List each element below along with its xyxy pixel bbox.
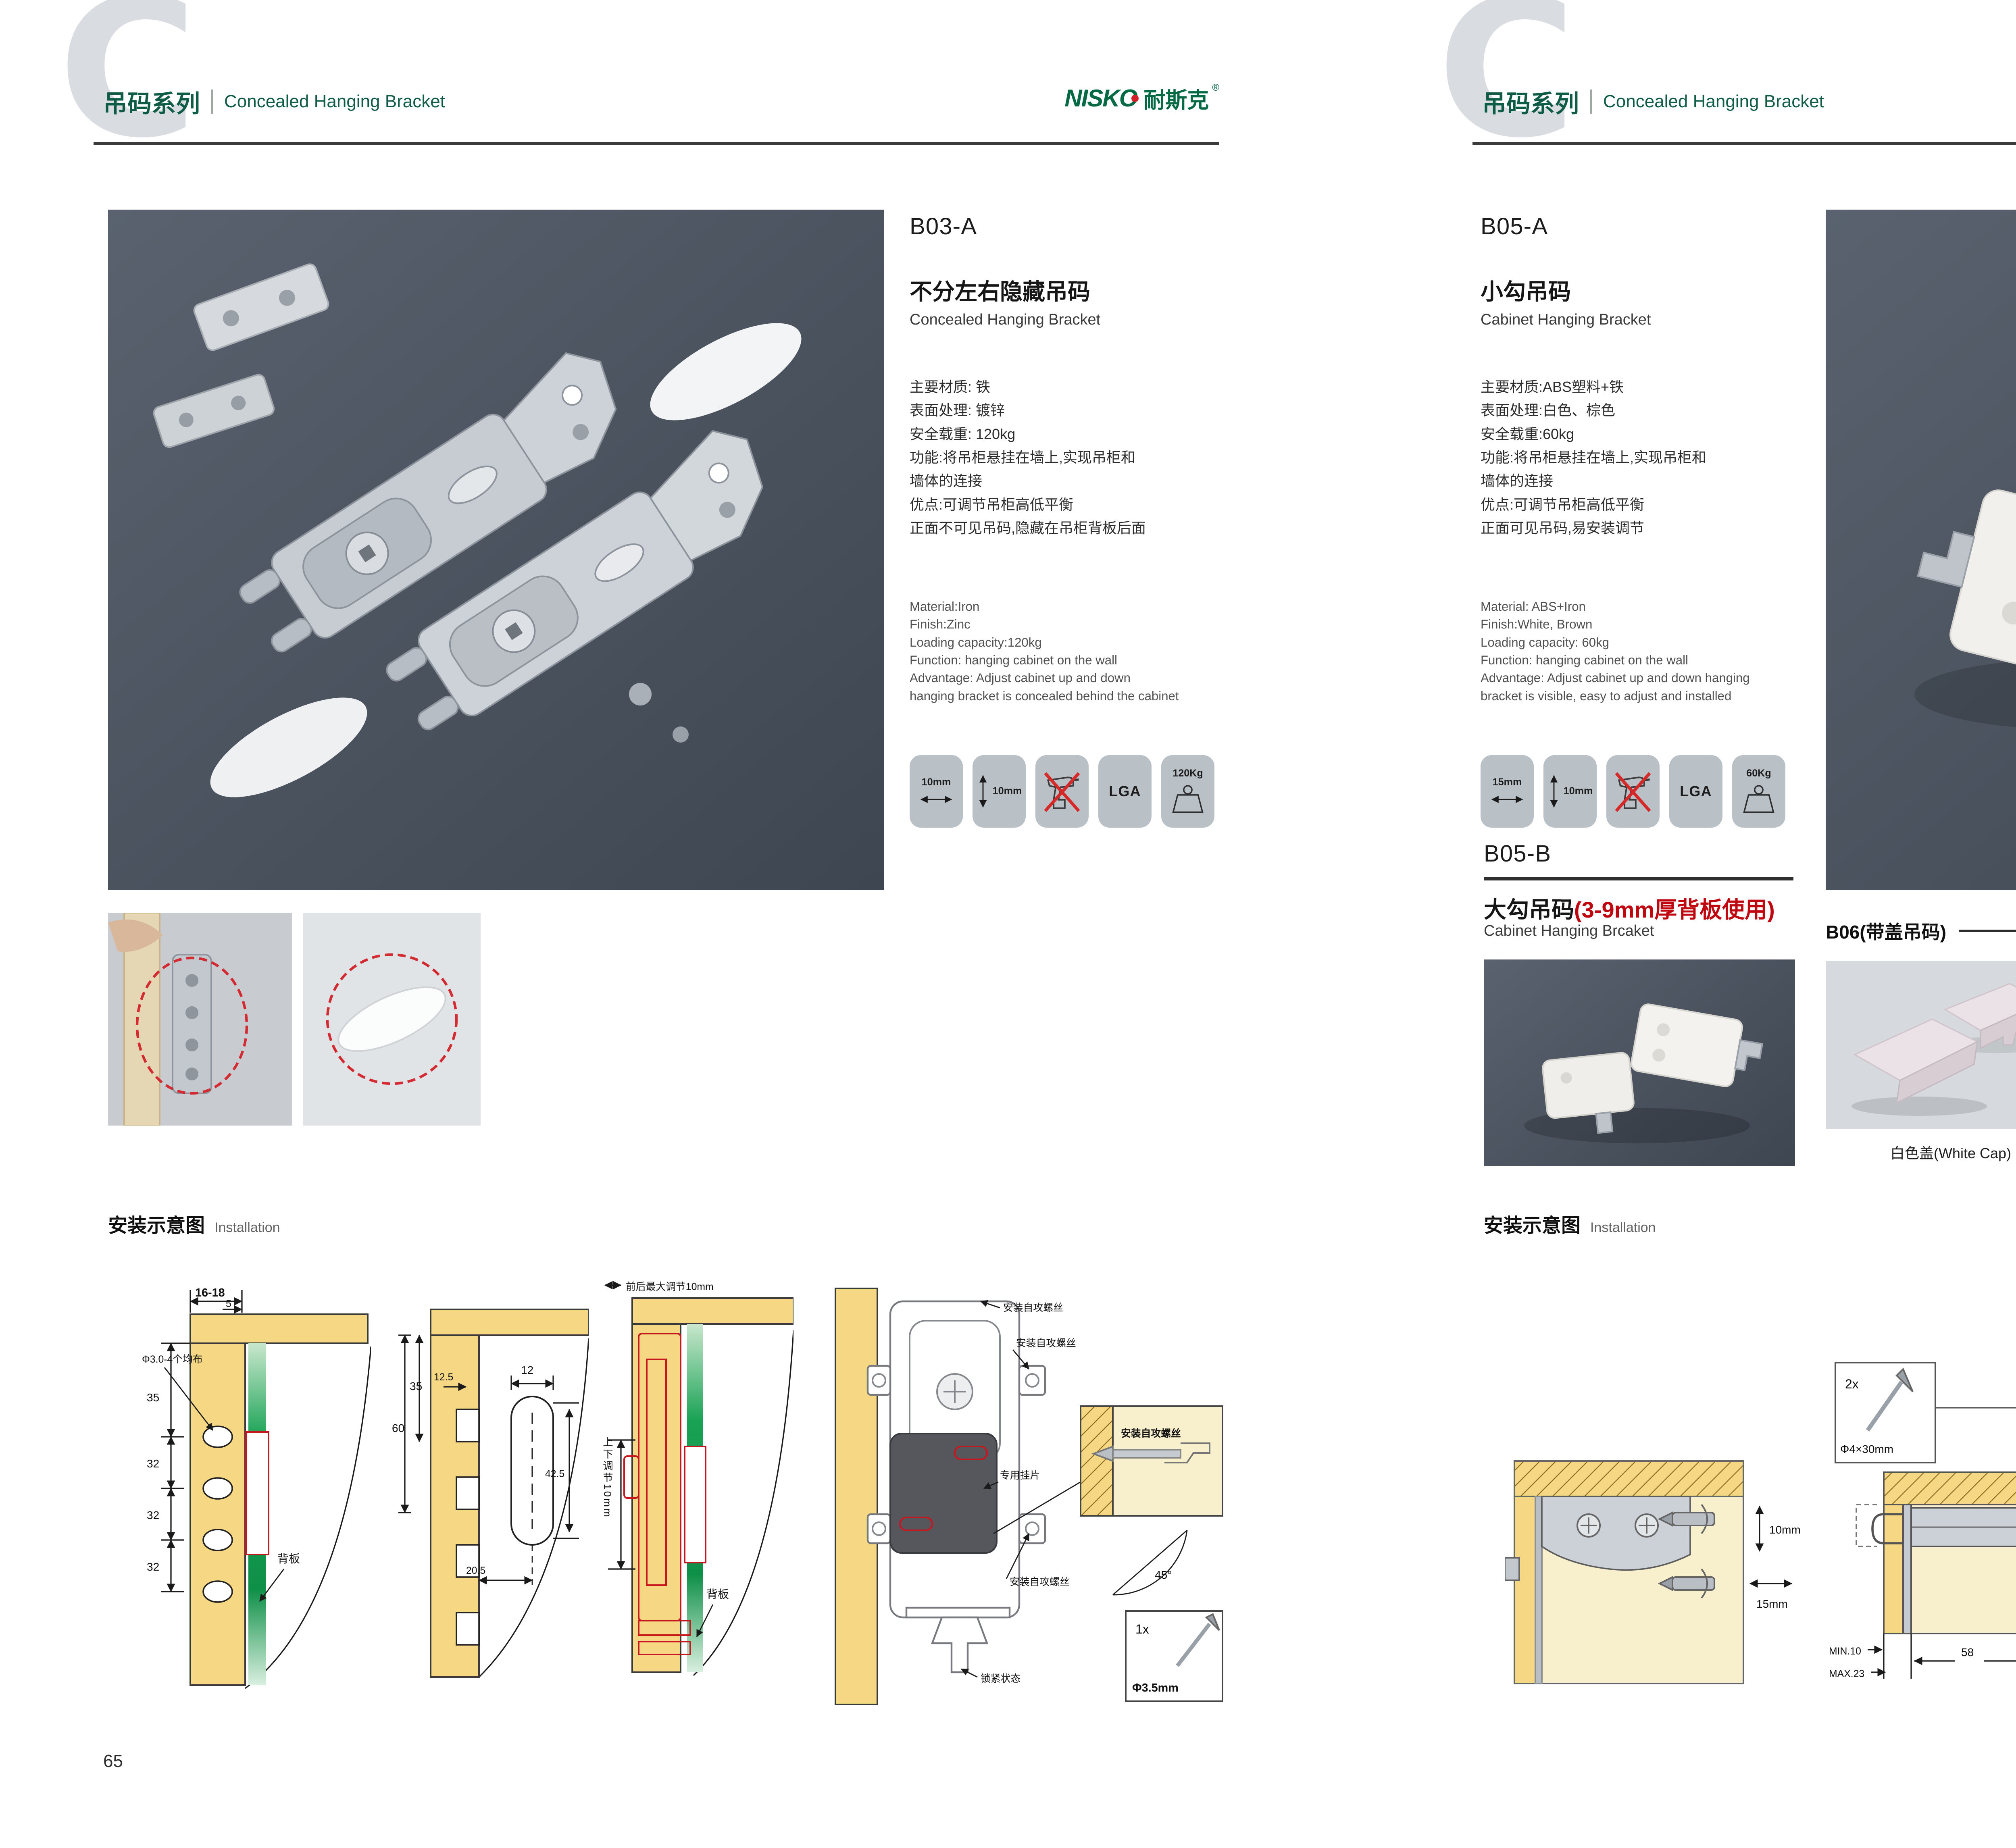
b06-section-header: B06(带盖吊码) — [1826, 918, 2016, 944]
dim-label: 58 — [1961, 1646, 1974, 1659]
product-name-cn: 大勾吊码(3-9mm厚背板使用) — [1484, 892, 1775, 924]
spec-line: 安全载重: 120kg — [910, 422, 1226, 446]
spec-line: 正面不可见吊码,隐藏在吊柜背板后面 — [910, 516, 1226, 540]
installation-title-en: Installation — [1590, 1220, 1656, 1236]
dim-label: MIN.10 — [1829, 1646, 1861, 1657]
no-drill-icon — [1612, 767, 1654, 816]
b06-title: B06(带盖吊码) — [1826, 918, 1946, 944]
product-name-cn: 不分左右隐藏吊码 — [910, 274, 1226, 306]
installation-title-right: 安装示意图 Installation — [1484, 1209, 1656, 1238]
arrow-horizontal-icon — [915, 793, 957, 806]
brand-logo-text: NISKO — [1064, 84, 1140, 112]
b05a-specs-en: Material: ABS+Iron Finish:White, Brown L… — [1481, 598, 1800, 705]
installation-title-cn: 安装示意图 — [108, 1209, 205, 1238]
header-rule-left — [94, 142, 1219, 145]
page-number-left: 65 — [103, 1751, 123, 1771]
spec-line: 正面可见吊码,易安装调节 — [1481, 516, 1800, 540]
spec-line: Finish:White, Brown — [1481, 616, 1800, 633]
spec-line: Loading capacity: 60kg — [1481, 634, 1800, 651]
dim-label: 5 — [226, 1299, 231, 1309]
badge-label: LGA — [1680, 783, 1712, 800]
arrow-vertical-icon — [977, 769, 989, 814]
badge-load-capacity: 120Kg — [1161, 755, 1214, 828]
weight-icon — [1168, 784, 1207, 815]
b05a-specs-cn: 主要材质:ABS塑料+铁 表面处理:白色、棕色 安全载重:60kg 功能:将吊柜… — [1481, 375, 1800, 540]
spec-line: hanging bracket is concealed behind the … — [910, 687, 1226, 705]
product-code: B05-B — [1484, 840, 1551, 867]
spec-line: Material:Iron — [910, 598, 1226, 616]
dim-label: 12 — [521, 1364, 533, 1376]
b03a-thumbnail-illustration — [108, 913, 292, 1126]
dim-label: MAX.23 — [1829, 1669, 1864, 1679]
badge-label: 10mm — [993, 785, 1022, 797]
diagram-b03a-adjust-drawing: 前后最大调节10mm 背板 — [600, 1276, 793, 1701]
spec-line: Finish:Zinc — [910, 616, 1226, 633]
diagram-b03a-slot: 60 35 12.5 12 42.5 20.5 — [392, 1287, 589, 1693]
product-name-en: Cabinet Hanging Bracket — [1481, 311, 1800, 329]
header-rule-right — [1472, 142, 2016, 145]
b03a-cover-illustration — [303, 913, 481, 1126]
spec-line: 功能:将吊柜悬挂在墙上,实现吊柜和 — [1481, 446, 1800, 469]
screw-size: Φ3.5mm — [1132, 1682, 1179, 1694]
b03a-info-column: B03-A 不分左右隐藏吊码 Concealed Hanging Bracket… — [910, 213, 1226, 828]
plate-note: 专用挂片 — [1000, 1470, 1040, 1481]
spec-line: Function: hanging cabinet on the wall — [910, 651, 1226, 669]
spec-line: 主要材质: 铁 — [910, 375, 1226, 399]
product-name-en: Concealed Hanging Bracket — [910, 311, 1226, 329]
dim-label: 16-18 — [195, 1286, 225, 1299]
b05a-product-photo — [1826, 210, 2016, 890]
front-back-adjust-label: 前后最大调节10mm — [626, 1281, 714, 1292]
screw-note: 安装自攻螺丝 — [1016, 1338, 1076, 1349]
spec-line: Advantage: Adjust cabinet up and down ha… — [1481, 669, 1800, 687]
badge-load-capacity: 60Kg — [1732, 755, 1785, 828]
b05b-name-note: (3-9mm厚背板使用) — [1574, 897, 1775, 922]
b05a-info-column: B05-A 小勾吊码 Cabinet Hanging Bracket 主要材质:… — [1481, 213, 1800, 828]
diagram-b05-mounting: 2x Φ4×30mm 18 MIN.10 MAX.23 58 — [1829, 1359, 2016, 1690]
no-drill-icon — [1041, 767, 1083, 816]
product-code: B03-A — [910, 213, 1226, 240]
weight-icon — [1739, 784, 1778, 815]
vertical-adjust-label: 上下调节10mm — [600, 1437, 614, 1519]
screw-note: 安装自攻螺丝 — [1003, 1302, 1063, 1313]
badge-height-adjust: 10mm — [1543, 755, 1597, 828]
badge-label: 120Kg — [1173, 768, 1203, 779]
dim-label: 35 — [147, 1391, 159, 1404]
dim-label: 35 — [410, 1380, 422, 1392]
spec-line: Loading capacity:120kg — [910, 634, 1226, 651]
b03a-specs-cn: 主要材质: 铁 表面处理: 镀锌 安全载重: 120kg 功能:将吊柜悬挂在墙上… — [910, 375, 1226, 540]
screw-size: Φ4×30mm — [1840, 1443, 1893, 1455]
header-divider — [211, 89, 213, 114]
badge-label: 10mm — [922, 776, 951, 788]
series-title-cn: 吊码系列 — [1482, 84, 1579, 119]
badge-height-adjust: 10mm — [973, 755, 1026, 828]
b03a-cover-thumbnail — [303, 913, 481, 1126]
badge-no-drill — [1606, 755, 1660, 828]
badge-lga: LGA — [1098, 755, 1152, 828]
arrow-vertical-icon — [1547, 769, 1560, 814]
series-title-en: Concealed Hanging Bracket — [1603, 92, 1824, 112]
badge-label: 15mm — [1493, 776, 1522, 788]
right-page-header: 吊码系列 Concealed Hanging Bracket — [1482, 84, 1824, 119]
spec-line: 主要材质:ABS塑料+铁 — [1481, 375, 1800, 399]
screw-qty: 1x — [1135, 1622, 1149, 1636]
dim-label: 10mm — [1769, 1523, 1801, 1536]
product-code: B05-A — [1481, 213, 1800, 240]
b03a-product-illustration — [108, 210, 884, 890]
detail-screw-note: 安装自攻螺丝 — [1121, 1428, 1181, 1439]
back-panel-label: 背板 — [706, 1588, 729, 1600]
diagram-b05-section: 10mm 15mm — [1505, 1416, 1814, 1693]
series-title-en: Concealed Hanging Bracket — [224, 92, 445, 112]
spec-line: 墙体的连接 — [910, 469, 1226, 493]
spec-line: Advantage: Adjust cabinet up and down — [910, 669, 1226, 687]
b06-white-cap-photo — [1826, 961, 2016, 1129]
arrow-horizontal-icon — [1486, 793, 1528, 806]
badge-depth-adjust: 10mm — [910, 755, 963, 828]
b05b-product-photo — [1484, 959, 1795, 1166]
watermark-letter-left: C — [58, 0, 198, 164]
spec-line: Function: hanging cabinet on the wall — [1481, 651, 1800, 669]
b06-rule — [1959, 930, 2016, 932]
dim-label: 20.5 — [466, 1565, 485, 1576]
dim-label: 32 — [147, 1509, 159, 1521]
spec-line: 墙体的连接 — [1481, 469, 1800, 493]
brand-logo-cn: 耐斯克 — [1143, 82, 1209, 114]
dim-label: 12.5 — [434, 1372, 453, 1383]
b05b-name: 大勾吊码 — [1484, 897, 1574, 922]
dim-label: 32 — [147, 1561, 159, 1573]
spec-line: 优点:可调节吊柜高低平衡 — [1481, 493, 1800, 516]
b05b-product-illustration — [1484, 959, 1795, 1166]
registered-mark-icon: ® — [1212, 82, 1219, 94]
diagram-b03a-drilling: 16-18 5 35 32 32 32 Φ3.0-4个均布 背板 — [142, 1282, 371, 1704]
spec-line: 表面处理:白色、棕色 — [1481, 399, 1800, 422]
brand-logo-left: NISKO 耐斯克 ® — [1026, 82, 1219, 114]
spec-line: 功能:将吊柜悬挂在墙上,实现吊柜和 — [910, 446, 1226, 469]
screw-qty: 2x — [1845, 1377, 1859, 1391]
badge-label: LGA — [1109, 783, 1141, 800]
diagram-b03a-adjust: 上下调节10mm 前后最大调节10mm 背板 — [600, 1276, 793, 1701]
b03a-product-photo — [108, 210, 884, 890]
installation-title-left: 安装示意图 Installation — [108, 1209, 280, 1238]
badge-no-drill — [1035, 755, 1089, 828]
white-cap-label: 白色盖(White Cap) — [1826, 1142, 2016, 1163]
header-divider — [1590, 89, 1592, 114]
installation-title-cn: 安装示意图 — [1484, 1209, 1581, 1238]
watermark-letter-right: C — [1437, 0, 1577, 164]
badge-label: 60Kg — [1746, 768, 1771, 779]
diagram-b03a-bracket-detail: 安装自攻螺丝 安装自攻螺丝 安装自攻螺丝 专用挂片 锁紧状态 安装自攻螺丝 45… — [826, 1276, 1226, 1717]
b03a-feature-badges: 10mm 10mm LGA 120Kg — [910, 755, 1226, 828]
dim-label: 32 — [147, 1457, 159, 1470]
white-cap-illustration — [1826, 961, 2016, 1129]
spec-line: 安全载重:60kg — [1481, 422, 1800, 446]
catalog-spread: C 吊码系列 Concealed Hanging Bracket NISKO 耐… — [0, 0, 2016, 1848]
dim-label: 60 — [392, 1422, 404, 1434]
dim-label: 15mm — [1756, 1598, 1788, 1610]
product-name-en: Cabinet Hanging Brcaket — [1484, 922, 1654, 940]
spec-line: 优点:可调节吊柜高低平衡 — [910, 493, 1226, 516]
hole-note: Φ3.0-4个均布 — [142, 1354, 203, 1365]
b03a-install-thumbnail — [108, 913, 292, 1126]
badge-lga: LGA — [1669, 755, 1722, 828]
b03a-specs-en: Material:Iron Finish:Zinc Loading capaci… — [910, 598, 1226, 705]
series-title-cn: 吊码系列 — [103, 84, 200, 119]
lock-note: 锁紧状态 — [981, 1673, 1020, 1684]
screw-note: 安装自攻螺丝 — [1010, 1576, 1070, 1588]
badge-depth-adjust: 15mm — [1481, 755, 1534, 828]
b05b-divider — [1484, 877, 1793, 880]
spec-line: 表面处理: 镀锌 — [910, 399, 1226, 422]
dim-label: 42.5 — [545, 1469, 564, 1480]
badge-label: 10mm — [1564, 785, 1593, 797]
installation-title-en: Installation — [215, 1220, 280, 1236]
b05a-feature-badges: 15mm 10mm LGA 60Kg — [1481, 755, 1800, 828]
spec-line: Material: ABS+Iron — [1481, 598, 1800, 616]
product-name-cn: 小勾吊码 — [1481, 274, 1800, 306]
angle-label: 45° — [1155, 1569, 1172, 1581]
left-page-header: 吊码系列 Concealed Hanging Bracket — [103, 84, 445, 119]
spec-line: bracket is visible, easy to adjust and i… — [1481, 687, 1800, 705]
b05a-product-illustration — [1826, 210, 2016, 890]
back-panel-label: 背板 — [277, 1552, 300, 1565]
